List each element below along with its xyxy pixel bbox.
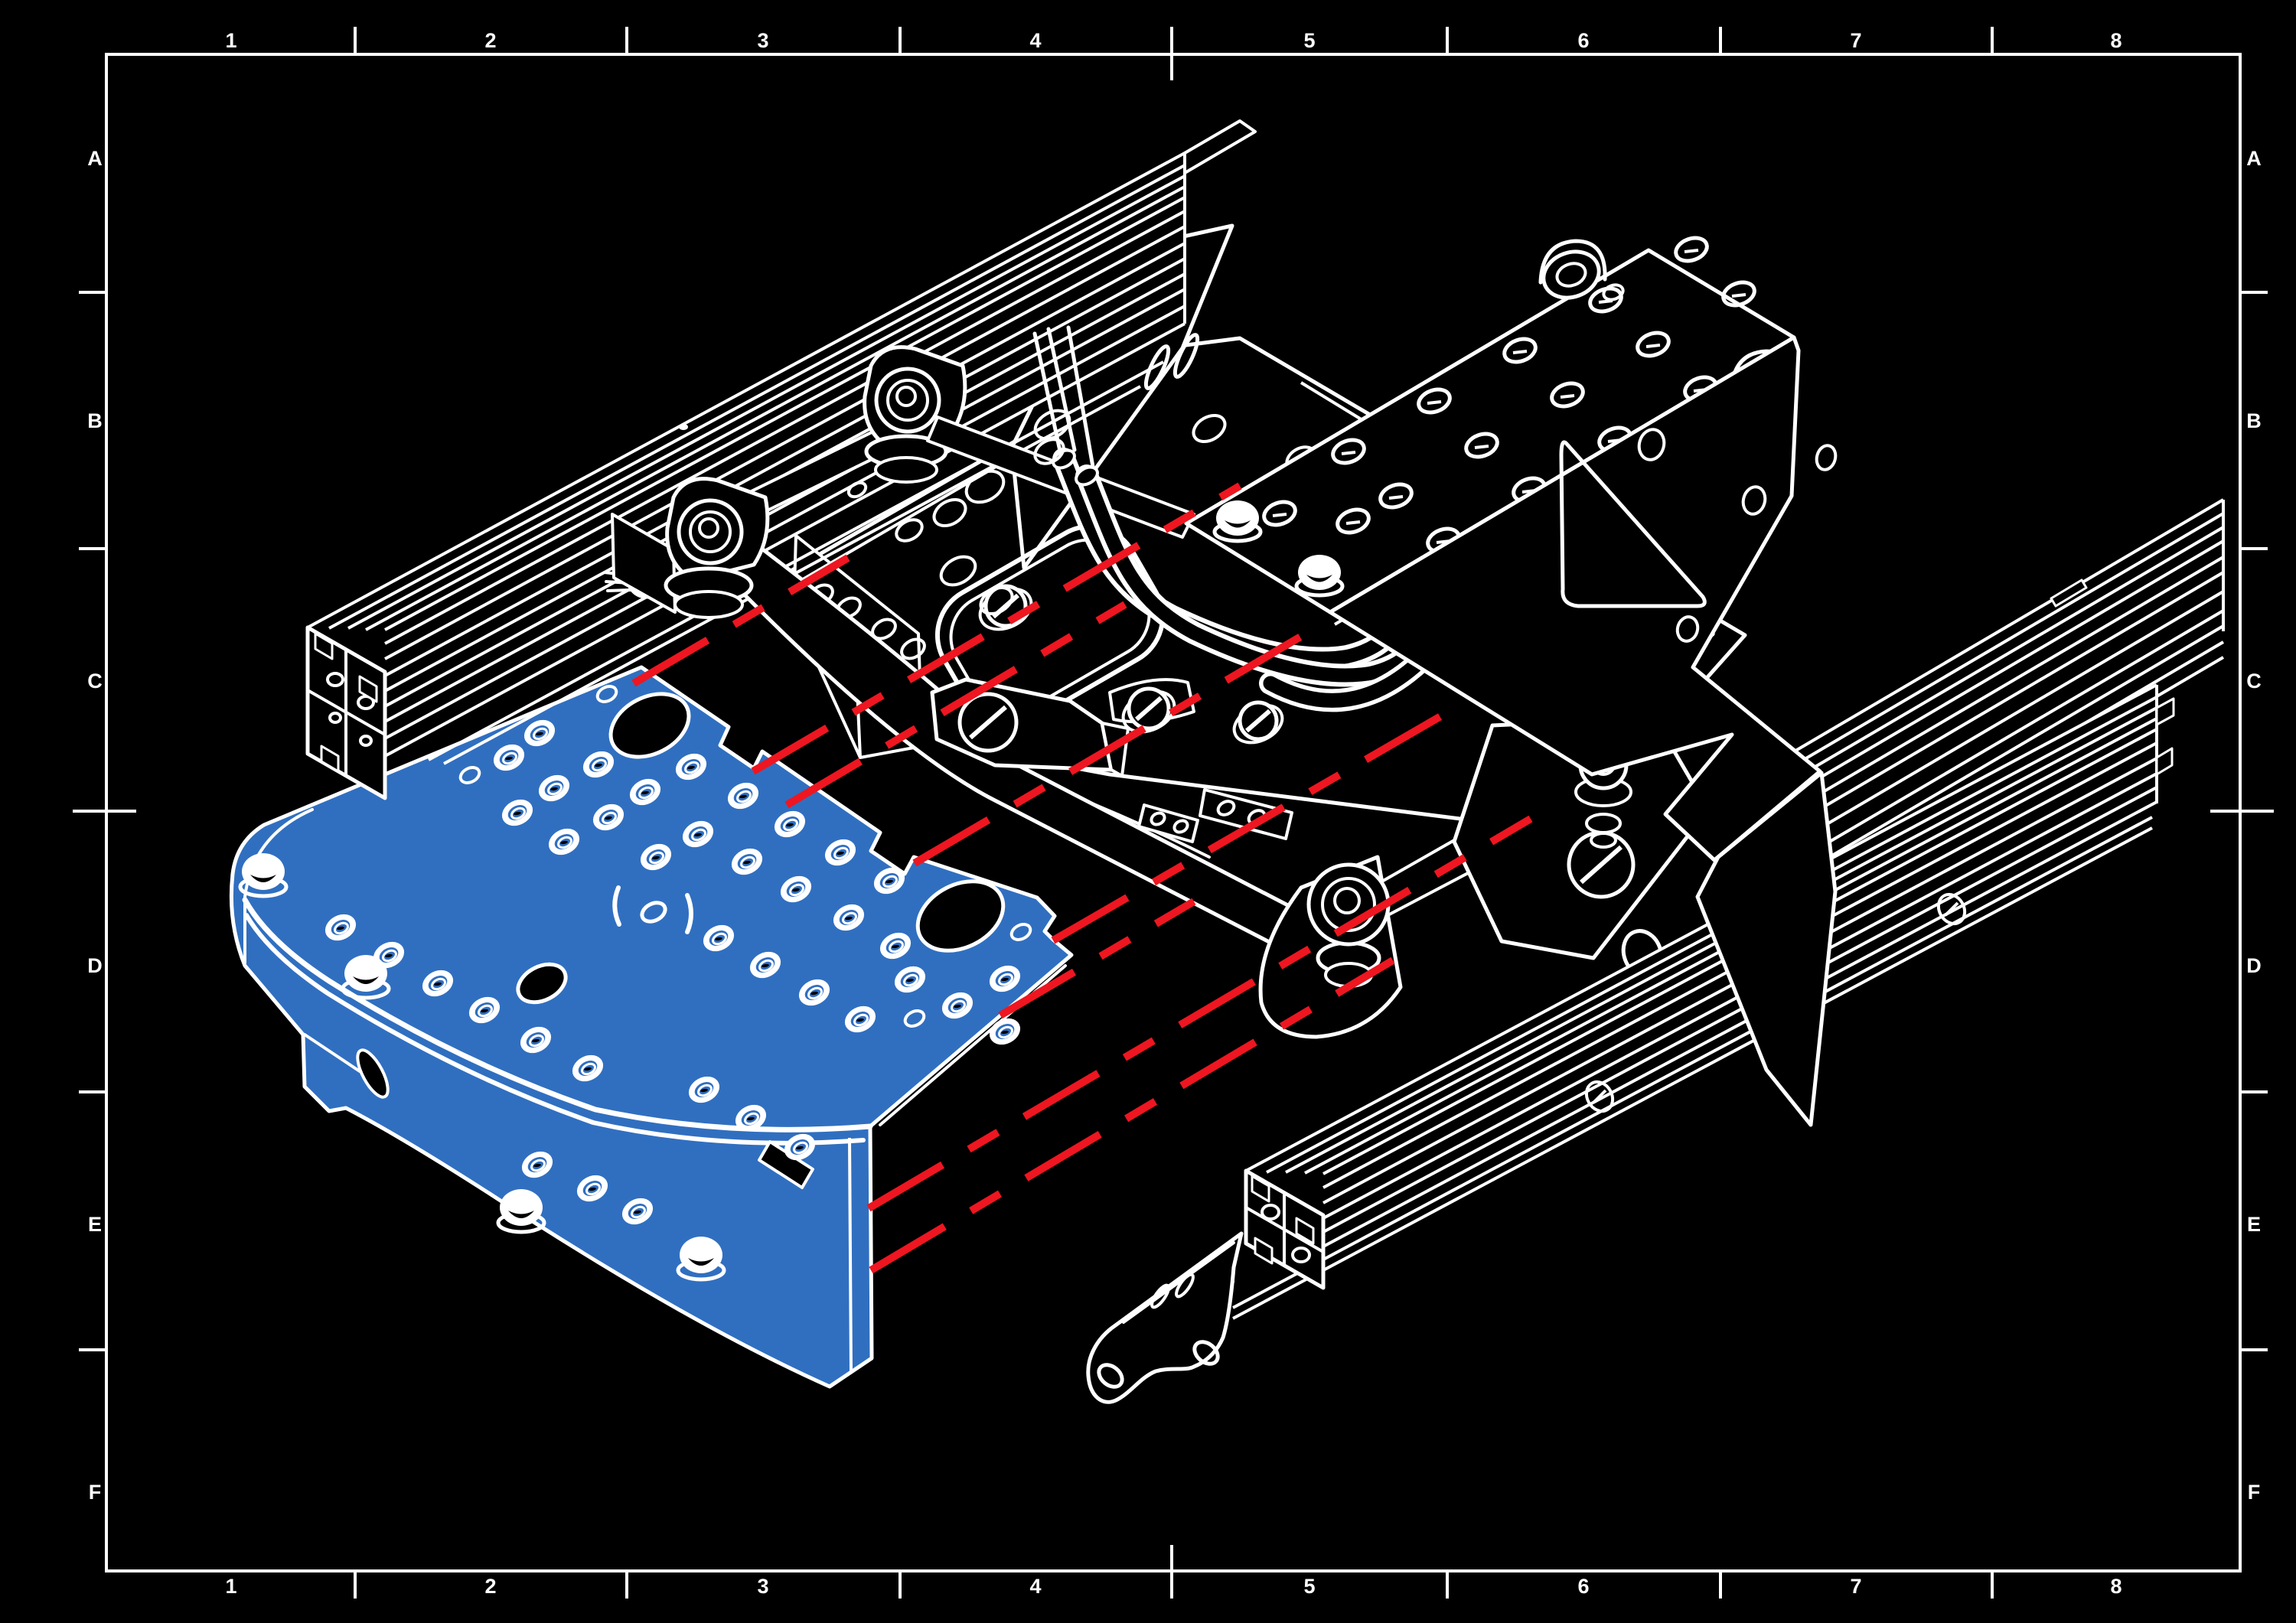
svg-text:E: E — [88, 1213, 102, 1236]
svg-text:2: 2 — [484, 29, 496, 52]
svg-text:F: F — [89, 1481, 102, 1504]
svg-text:7: 7 — [1850, 1575, 1861, 1598]
svg-text:D: D — [2246, 954, 2262, 977]
svg-text:C: C — [87, 670, 103, 693]
svg-text:2: 2 — [484, 1575, 496, 1598]
svg-text:C: C — [2246, 670, 2262, 693]
svg-text:3: 3 — [757, 29, 768, 52]
svg-text:7: 7 — [1850, 29, 1861, 52]
svg-text:E: E — [2247, 1213, 2261, 1236]
svg-text:4: 4 — [1029, 1575, 1041, 1598]
svg-text:A: A — [2246, 147, 2262, 170]
svg-text:1: 1 — [225, 29, 236, 52]
svg-text:3: 3 — [757, 1575, 768, 1598]
svg-text:8: 8 — [2110, 1575, 2122, 1598]
svg-text:5: 5 — [1303, 1575, 1315, 1598]
svg-text:D: D — [87, 954, 103, 977]
svg-text:B: B — [87, 409, 103, 432]
svg-text:F: F — [2248, 1481, 2261, 1504]
svg-text:6: 6 — [1577, 29, 1589, 52]
svg-text:5: 5 — [1303, 29, 1315, 52]
svg-text:A: A — [87, 147, 103, 170]
svg-text:4: 4 — [1029, 29, 1041, 52]
svg-text:6: 6 — [1577, 1575, 1589, 1598]
svg-text:8: 8 — [2110, 29, 2122, 52]
svg-text:B: B — [2246, 409, 2262, 432]
svg-text:1: 1 — [225, 1575, 236, 1598]
